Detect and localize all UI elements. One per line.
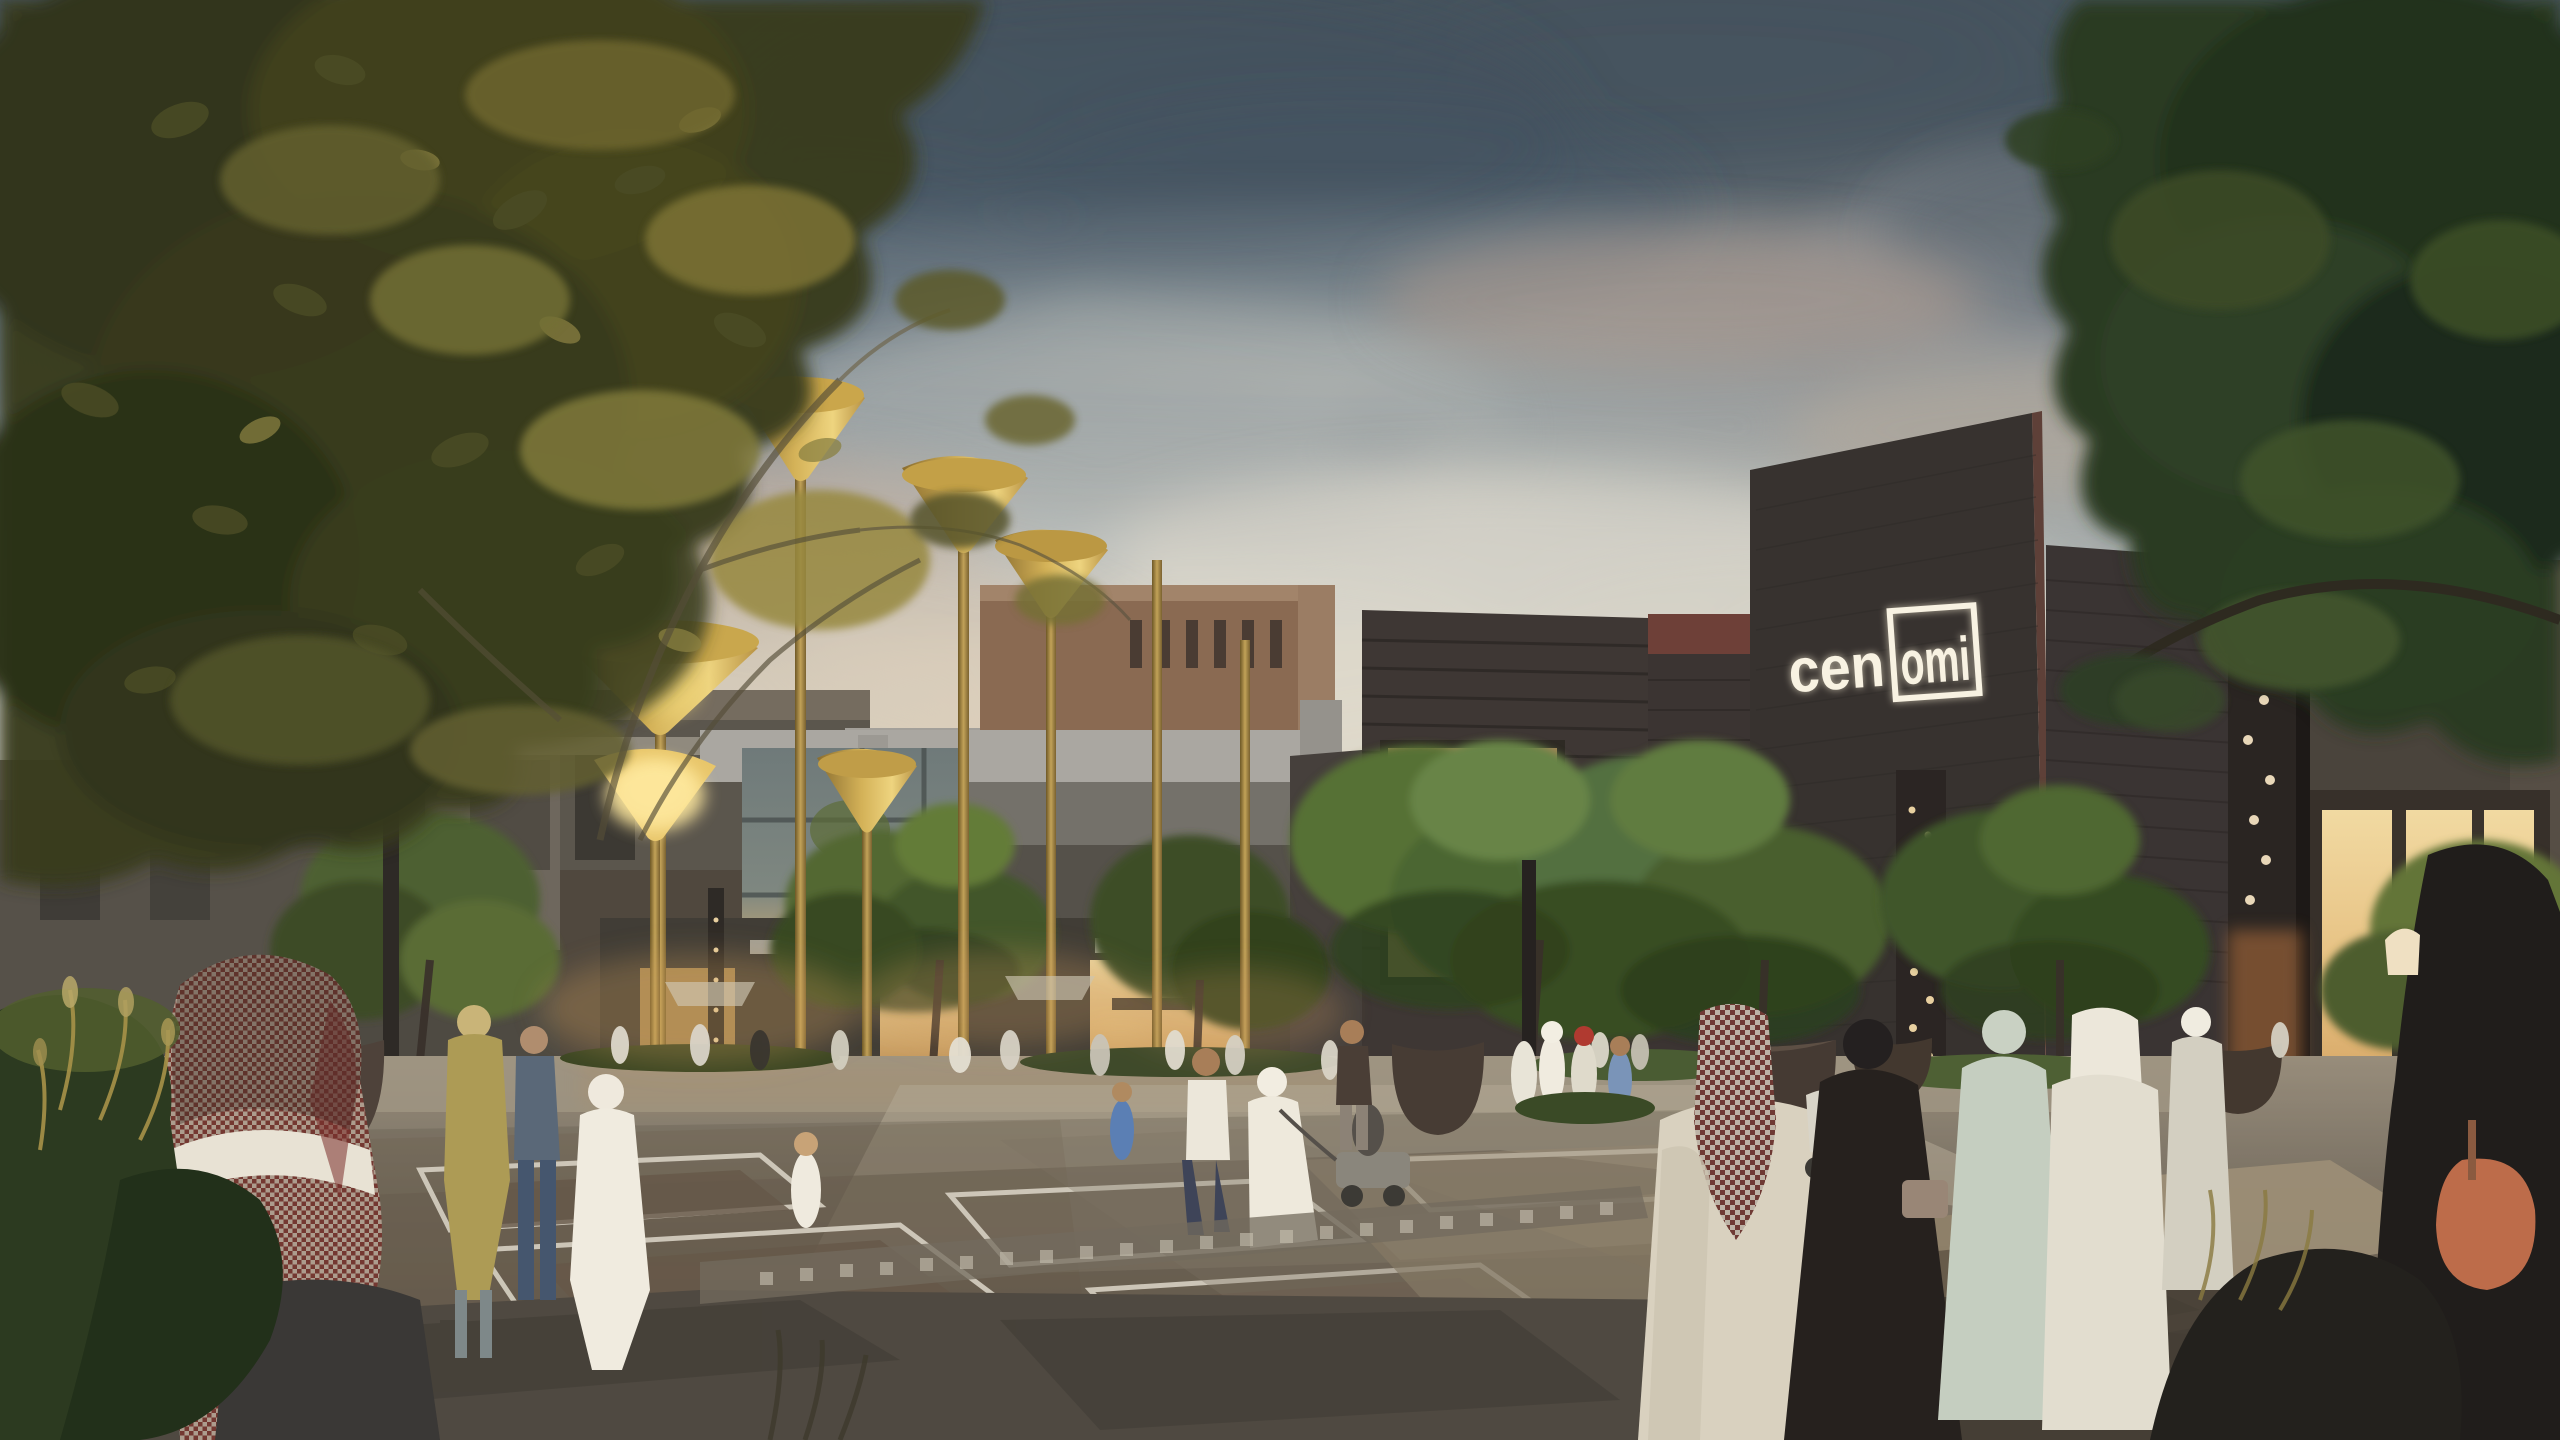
svg-text:omi: omi (1898, 625, 1973, 699)
svg-text:cen: cen (1786, 631, 1887, 707)
